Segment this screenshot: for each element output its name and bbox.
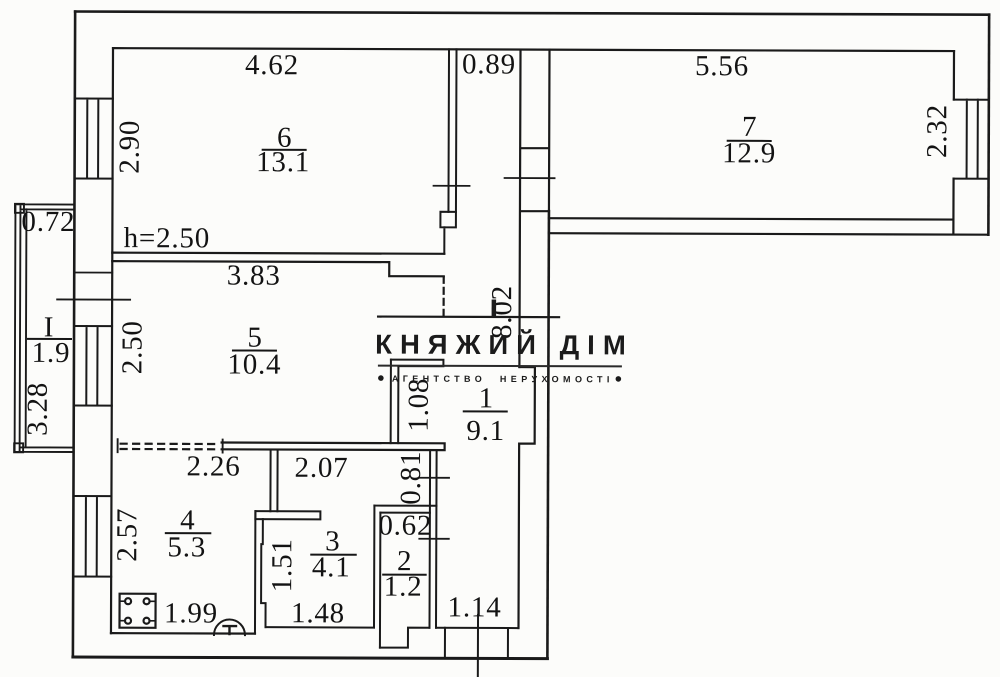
svg-text:АГЕНТСТВО НЕРУХОМОСТІ: АГЕНТСТВО НЕРУХОМОСТІ bbox=[392, 374, 614, 385]
svg-text:2.32: 2.32 bbox=[921, 104, 953, 158]
svg-text:2.57: 2.57 bbox=[111, 508, 143, 562]
svg-text:0.62: 0.62 bbox=[378, 510, 432, 542]
svg-text:1.9: 1.9 bbox=[32, 337, 71, 369]
svg-text:12.9: 12.9 bbox=[722, 137, 776, 169]
svg-text:2.90: 2.90 bbox=[114, 120, 146, 174]
svg-text:1.08: 1.08 bbox=[403, 378, 435, 432]
svg-text:0.89: 0.89 bbox=[462, 48, 516, 80]
svg-text:1.99: 1.99 bbox=[164, 597, 218, 629]
svg-text:1.51: 1.51 bbox=[266, 538, 298, 592]
svg-text:0.72: 0.72 bbox=[21, 206, 75, 238]
svg-text:1: 1 bbox=[479, 382, 494, 414]
svg-text:5.56: 5.56 bbox=[695, 50, 749, 82]
svg-text:1.48: 1.48 bbox=[291, 597, 345, 629]
svg-text:10.4: 10.4 bbox=[227, 349, 281, 381]
svg-text:2.50: 2.50 bbox=[116, 320, 148, 374]
svg-text:1.14: 1.14 bbox=[448, 591, 502, 623]
svg-text:3.28: 3.28 bbox=[22, 382, 54, 436]
svg-text:4.62: 4.62 bbox=[245, 49, 299, 81]
svg-text:13.1: 13.1 bbox=[256, 146, 310, 178]
svg-text:КНЯЖИЙ ДІМ: КНЯЖИЙ ДІМ bbox=[375, 329, 634, 361]
svg-text:1.2: 1.2 bbox=[384, 571, 423, 603]
svg-text:5.3: 5.3 bbox=[167, 531, 206, 563]
svg-text:2.07: 2.07 bbox=[295, 452, 349, 484]
svg-text:h=2.50: h=2.50 bbox=[124, 222, 211, 254]
svg-text:9.1: 9.1 bbox=[466, 415, 505, 447]
svg-text:2.26: 2.26 bbox=[187, 450, 241, 482]
svg-text:0.81: 0.81 bbox=[395, 451, 427, 505]
svg-text:3.83: 3.83 bbox=[227, 260, 281, 292]
svg-text:4.1: 4.1 bbox=[312, 551, 351, 583]
